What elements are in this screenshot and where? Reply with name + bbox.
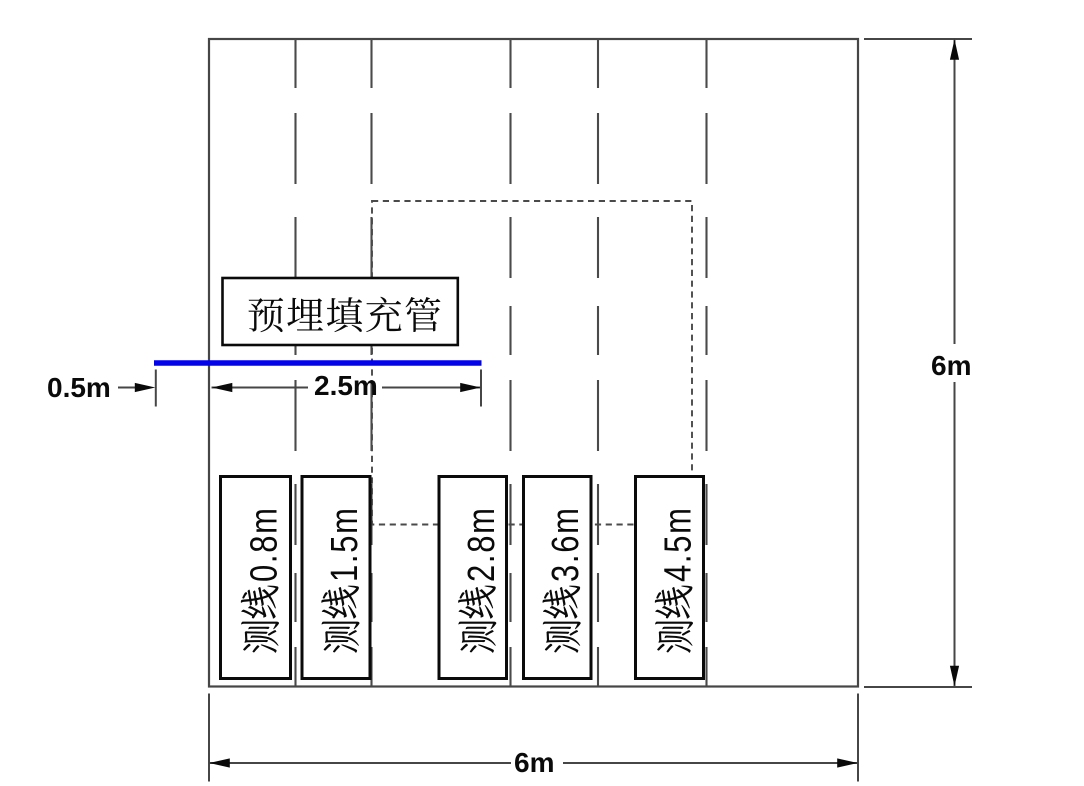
svg-text:2.8m: 2.8m [461, 506, 503, 582]
svg-text:1.5m: 1.5m [324, 506, 366, 582]
svg-text:6m: 6m [931, 350, 971, 381]
svg-text:2.5m: 2.5m [314, 370, 378, 401]
svg-text:3.6m: 3.6m [545, 506, 587, 582]
svg-text:0.8m: 0.8m [244, 506, 286, 582]
svg-text:6m: 6m [514, 747, 554, 778]
svg-text:4.5m: 4.5m [658, 506, 700, 582]
svg-text:0.5m: 0.5m [47, 372, 111, 403]
